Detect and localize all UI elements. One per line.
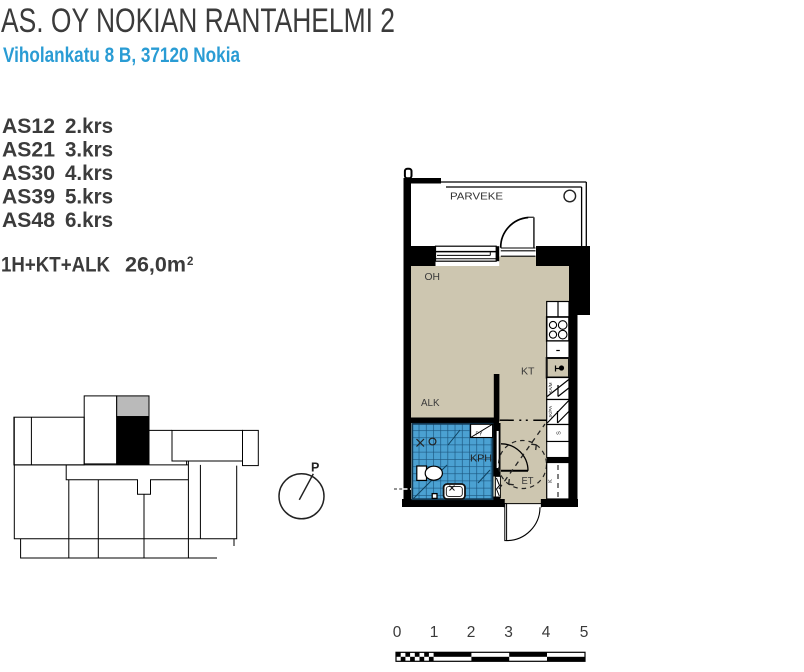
- svg-text:3: 3: [504, 624, 513, 641]
- svg-text:AS30: AS30: [2, 161, 55, 185]
- svg-text:JK/PA: JK/PA: [548, 406, 553, 418]
- svg-text:PARVEKE: PARVEKE: [450, 191, 503, 203]
- svg-text:AS39: AS39: [2, 184, 55, 208]
- svg-text:KT: KT: [521, 366, 535, 378]
- svg-text:26,0m: 26,0m: [125, 253, 186, 277]
- svg-text:1H+KT+ALK: 1H+KT+ALK: [1, 253, 110, 277]
- svg-text:KPH: KPH: [470, 453, 492, 465]
- svg-text:ALK: ALK: [421, 397, 440, 409]
- svg-text:0: 0: [393, 624, 402, 641]
- svg-text:6.krs: 6.krs: [65, 208, 113, 232]
- svg-text:2: 2: [187, 256, 193, 268]
- svg-text:1: 1: [430, 624, 439, 641]
- svg-text:KA/M: KA/M: [548, 382, 553, 393]
- svg-text:AS21: AS21: [2, 137, 55, 161]
- svg-text:ET: ET: [522, 475, 535, 487]
- svg-text:3.krs: 3.krs: [65, 137, 113, 161]
- svg-text:K: K: [548, 479, 554, 483]
- svg-text:PY: PY: [476, 432, 483, 438]
- svg-text:P: P: [311, 461, 319, 475]
- svg-text:4.krs: 4.krs: [65, 161, 113, 185]
- svg-text:AS48: AS48: [2, 208, 55, 232]
- svg-text:2: 2: [467, 624, 476, 641]
- svg-text:5.krs: 5.krs: [65, 184, 113, 208]
- svg-text:2.krs: 2.krs: [65, 114, 113, 138]
- svg-text:AS12: AS12: [2, 114, 55, 138]
- svg-text:Viholankatu 8 B, 37120 Nokia: Viholankatu 8 B, 37120 Nokia: [3, 44, 240, 67]
- svg-text:OH: OH: [425, 271, 441, 283]
- svg-text:5: 5: [580, 624, 589, 641]
- svg-text:4: 4: [542, 624, 551, 641]
- svg-text:S: S: [557, 431, 563, 435]
- svg-text:AS. OY NOKIAN RANTAHELMI 2: AS. OY NOKIAN RANTAHELMI 2: [1, 2, 395, 40]
